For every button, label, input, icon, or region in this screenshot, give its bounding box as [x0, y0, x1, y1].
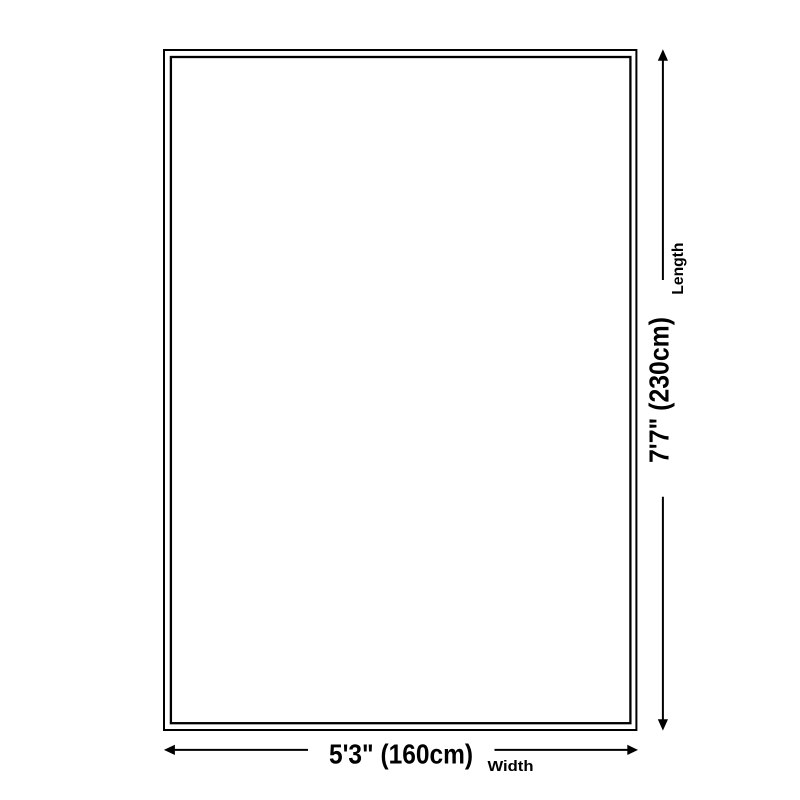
svg-text:5'3" (160cm): 5'3" (160cm)	[329, 739, 473, 770]
svg-text:Length: Length	[670, 243, 687, 295]
svg-text:Width: Width	[488, 758, 534, 775]
svg-text:7'7" (230cm): 7'7" (230cm)	[644, 317, 675, 463]
